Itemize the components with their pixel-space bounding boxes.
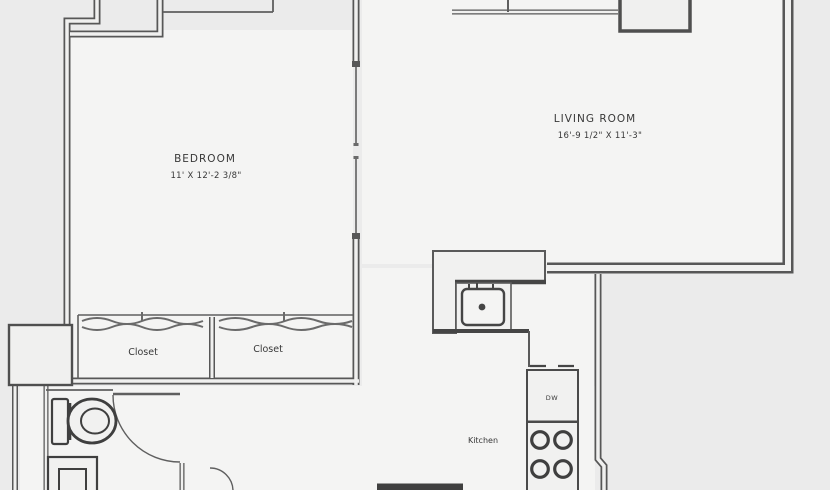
floor-plan-svg: BEDROOM 11' X 12'-2 3/8" LIVING ROOM 16'… [0, 0, 830, 490]
wall-end-cap [352, 61, 360, 67]
dishwasher-label: DW [546, 394, 559, 402]
living-room-label: LIVING ROOM [554, 113, 636, 125]
wall-end-cap [352, 233, 360, 239]
bedroom-dimensions: 11' X 12'-2 3/8" [170, 171, 241, 181]
shaft-box-left [9, 325, 72, 385]
kitchen-label: Kitchen [468, 436, 498, 445]
column-top-right [620, 0, 690, 31]
closet-left-label: Closet [128, 347, 158, 358]
living-room-dimensions: 16'-9 1/2" X 11'-3" [558, 131, 642, 141]
toilet-icon [52, 399, 116, 444]
pedestal-sink-icon [48, 457, 97, 490]
sink-basin [48, 457, 97, 490]
window-mullion [354, 156, 359, 159]
bedroom-label: BEDROOM [174, 153, 236, 165]
floor-plan-image: BEDROOM 11' X 12'-2 3/8" LIVING ROOM 16'… [0, 0, 830, 490]
toilet-tank [52, 399, 68, 444]
window-mullion [354, 143, 359, 146]
closet-right-label: Closet [253, 344, 283, 355]
faucet-icon [479, 304, 486, 311]
